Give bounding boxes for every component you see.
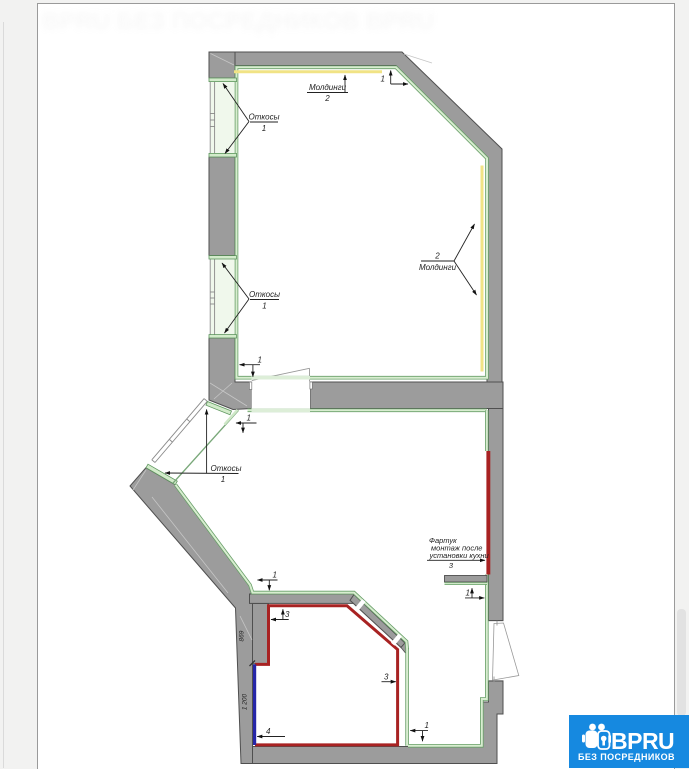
svg-text:1: 1 xyxy=(466,589,470,598)
svg-text:1: 1 xyxy=(247,414,251,423)
svg-text:1: 1 xyxy=(221,475,225,484)
svg-text:1: 1 xyxy=(262,124,266,133)
svg-text:Откосы: Откосы xyxy=(249,113,280,122)
svg-text:3: 3 xyxy=(384,673,389,682)
svg-text:1: 1 xyxy=(273,571,277,580)
svg-text:1: 1 xyxy=(425,721,429,730)
svg-text:1: 1 xyxy=(258,356,262,365)
svg-text:2: 2 xyxy=(434,252,440,261)
svg-text:2: 2 xyxy=(324,94,330,103)
svg-text:Откосы: Откосы xyxy=(249,290,280,299)
svg-text:Молдинги: Молдинги xyxy=(419,263,457,272)
svg-text:4: 4 xyxy=(266,727,271,736)
svg-text:1: 1 xyxy=(381,75,385,84)
svg-text:Молдинги: Молдинги xyxy=(309,83,347,92)
svg-text:869: 869 xyxy=(239,630,246,641)
svg-text:1: 1 xyxy=(262,302,266,311)
svg-text:1 200: 1 200 xyxy=(242,693,249,710)
svg-text:3: 3 xyxy=(285,610,290,619)
svg-text:установки кухни: установки кухни xyxy=(429,551,490,560)
svg-text:Откосы: Откосы xyxy=(211,464,242,473)
